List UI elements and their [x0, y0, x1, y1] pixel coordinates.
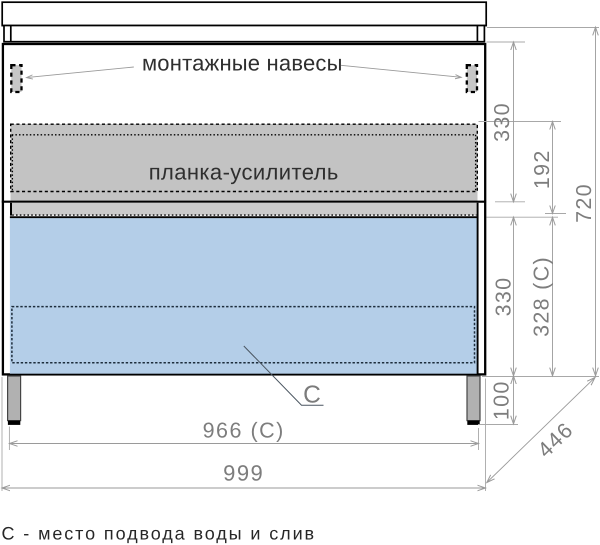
- svg-text:С: С: [303, 382, 321, 409]
- svg-text:999: 999: [223, 461, 264, 486]
- svg-text:330: 330: [490, 102, 514, 142]
- svg-text:330: 330: [491, 277, 515, 317]
- svg-text:С - место подвода воды и слив: С - место подвода воды и слив: [2, 524, 316, 544]
- svg-text:720: 720: [572, 183, 596, 223]
- svg-text:планка-усилитель: планка-усилитель: [149, 160, 339, 185]
- svg-text:монтажные навесы: монтажные навесы: [142, 51, 343, 76]
- svg-text:100: 100: [489, 380, 513, 420]
- svg-text:192: 192: [530, 149, 554, 189]
- svg-text:328 (С): 328 (С): [529, 256, 553, 337]
- svg-text:966 (С): 966 (С): [203, 418, 285, 442]
